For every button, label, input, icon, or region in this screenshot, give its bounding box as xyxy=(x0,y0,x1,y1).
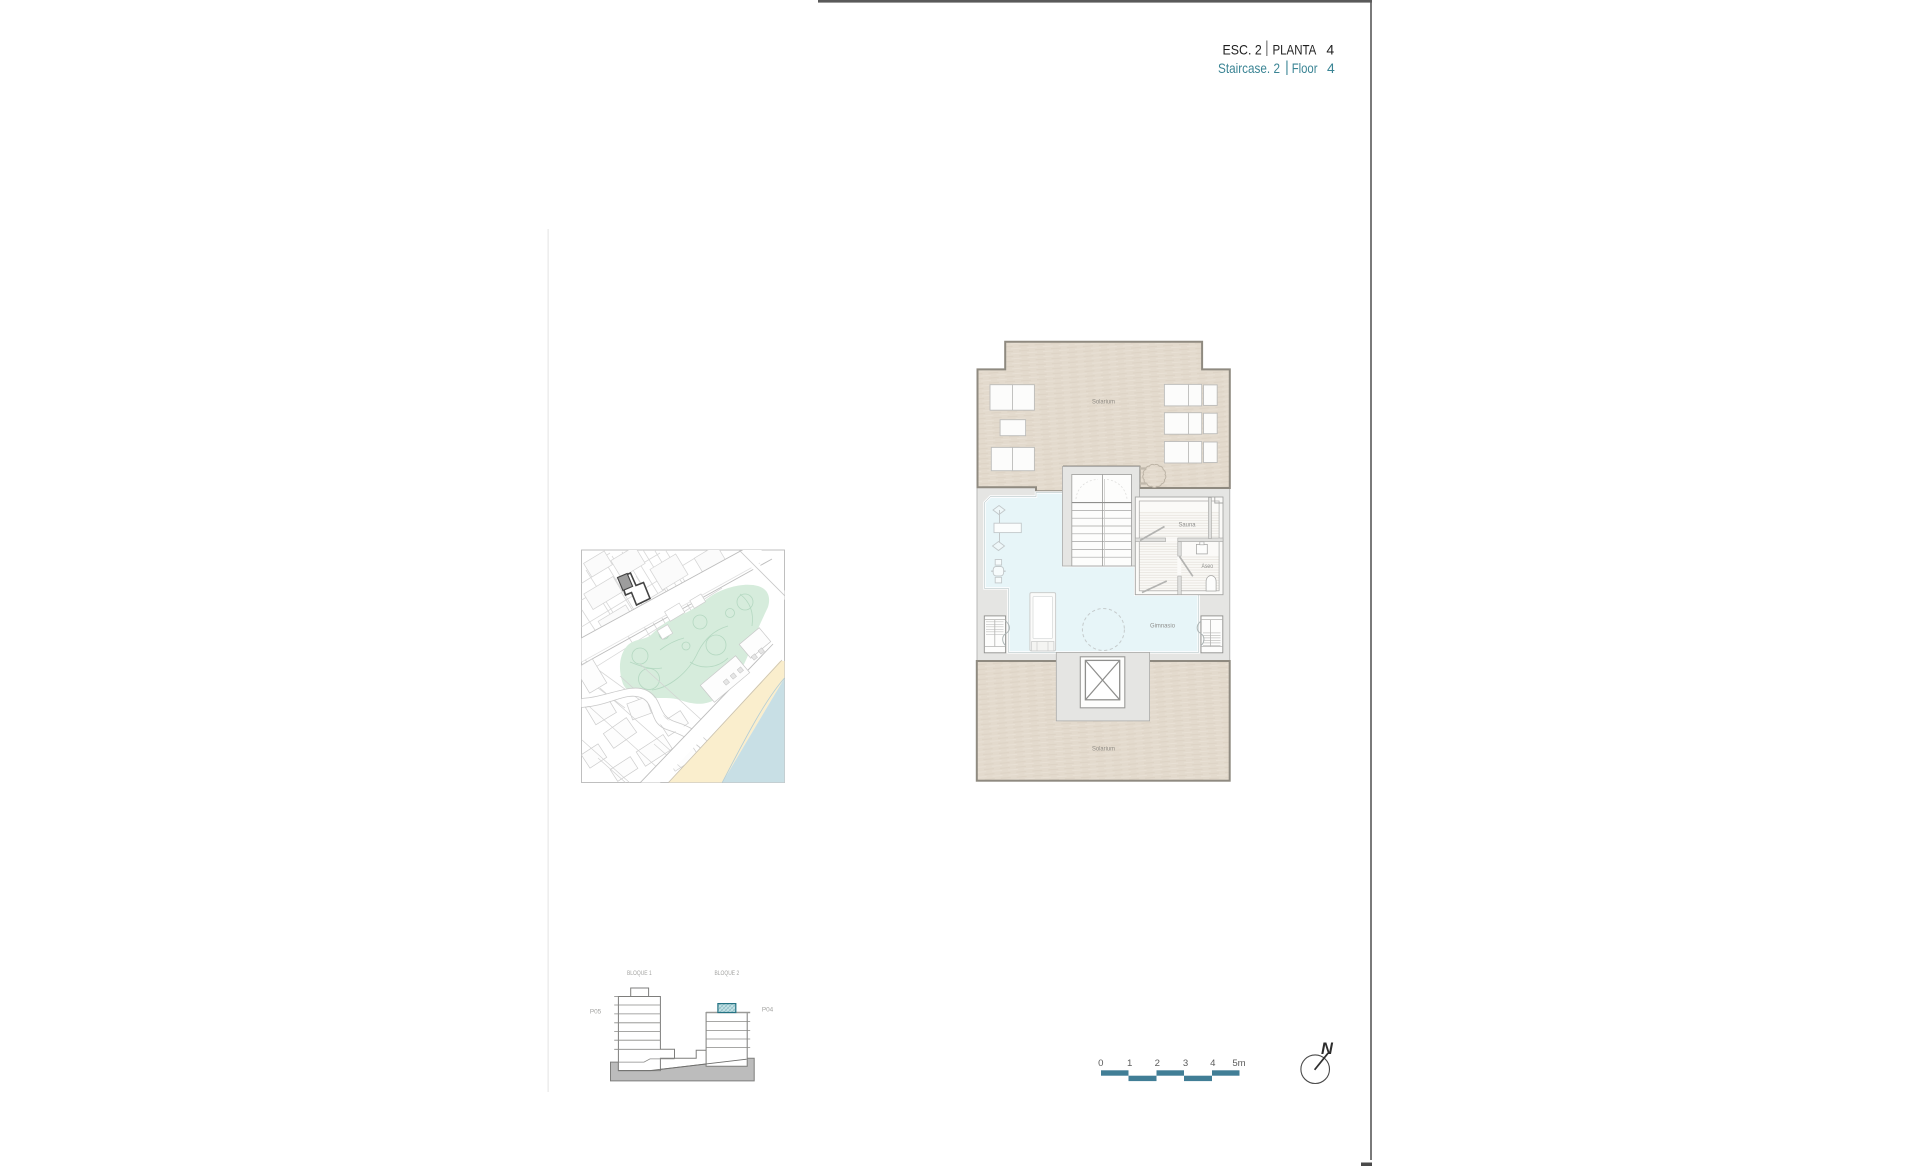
svg-text:4: 4 xyxy=(1210,1058,1216,1069)
svg-text:Sauna: Sauna xyxy=(1179,522,1196,529)
svg-text:P05: P05 xyxy=(590,1009,602,1016)
svg-text:Solarium: Solarium xyxy=(1092,399,1115,406)
svg-text:ESC. 2: ESC. 2 xyxy=(1223,42,1262,58)
svg-text:1: 1 xyxy=(1127,1058,1132,1069)
svg-text:Aseo: Aseo xyxy=(1202,563,1214,570)
svg-text:4: 4 xyxy=(1327,60,1335,76)
svg-text:BLOQUE 2: BLOQUE 2 xyxy=(715,970,740,977)
svg-text:0: 0 xyxy=(1098,1058,1103,1069)
svg-text:BLOQUE 1: BLOQUE 1 xyxy=(627,970,652,977)
svg-text:3: 3 xyxy=(1183,1058,1188,1069)
svg-text:4: 4 xyxy=(1326,42,1334,58)
svg-text:Gimnasio: Gimnasio xyxy=(1150,623,1175,630)
svg-text:5m: 5m xyxy=(1232,1058,1245,1069)
svg-text:N: N xyxy=(1321,1040,1334,1058)
svg-text:2: 2 xyxy=(1155,1058,1160,1069)
svg-text:P04: P04 xyxy=(762,1007,774,1014)
svg-text:PLANTA: PLANTA xyxy=(1273,42,1317,58)
svg-text:Floor: Floor xyxy=(1292,60,1318,76)
svg-text:Staircase. 2: Staircase. 2 xyxy=(1218,60,1280,76)
svg-text:Solarium: Solarium xyxy=(1092,746,1115,753)
